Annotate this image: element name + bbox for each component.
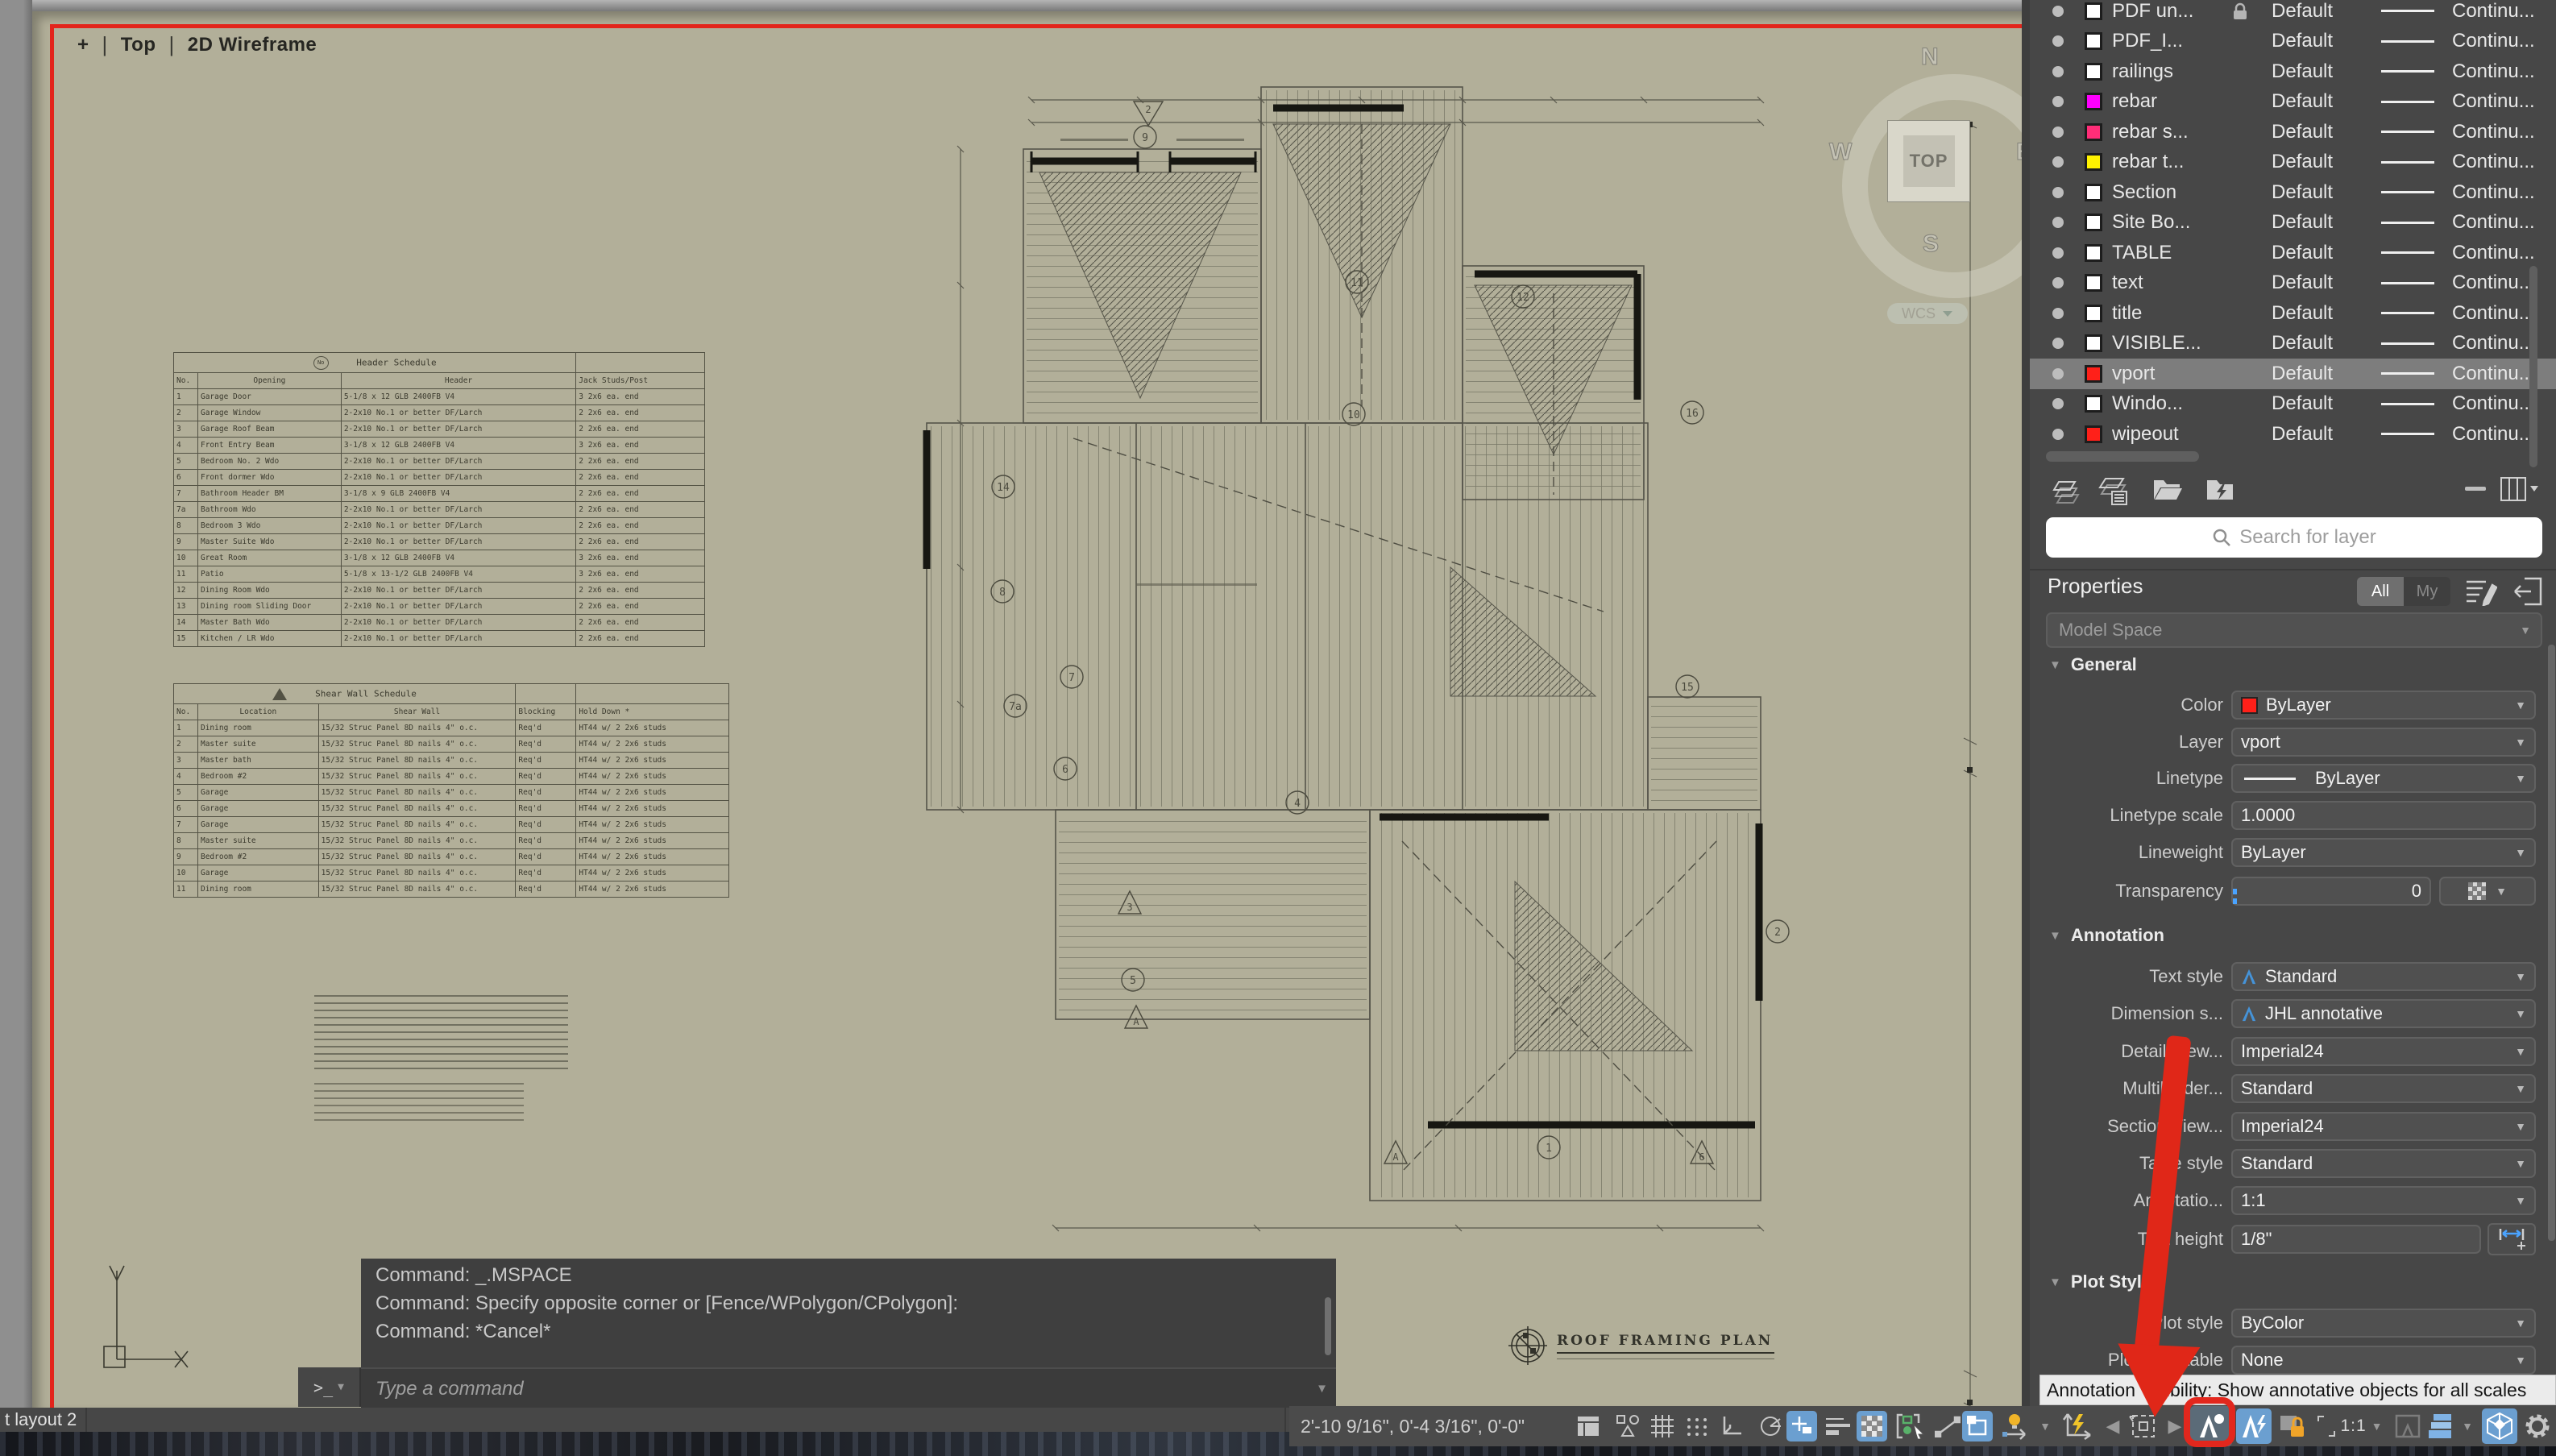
tooltip: Annotation Visibility: Show annotative o… [2039,1375,2556,1405]
right-panel: PDF un... Default Continu... PDF_I... De… [2022,0,2556,1456]
viewport-scale-control[interactable]: 1:1 ▼ [2314,1412,2387,1440]
layer-color-swatch[interactable] [2085,93,2102,110]
chevron-down-icon: ▼ [2515,1045,2526,1058]
layer-status-dot[interactable] [2052,187,2064,198]
table-row: 9Bedroom #215/32 Struc Panel 8D nails 4"… [174,849,729,865]
chevron-down-icon: ▼ [2515,1194,2526,1207]
multileader-dropdown[interactable]: Standard▼ [2231,1074,2536,1103]
chevron-down-icon: ▼ [2515,1120,2526,1133]
layer-status-dot[interactable] [2052,368,2064,380]
table-row: 1Dining room15/32 Struc Panel 8D nails 4… [174,720,729,736]
layer-line-sample [2381,70,2434,73]
properties-scrollbar[interactable] [2548,645,2555,1241]
linetype-label: Linetype [2030,764,2223,793]
chevron-down-icon[interactable]: ▼ [2037,1412,2053,1440]
collapse-triangle-icon: ▼ [2049,658,2061,672]
ucs-icon [85,1256,197,1385]
layer-name: wipeout [2112,423,2233,446]
wcs-menu[interactable]: WCS [1887,303,1968,324]
svg-text:1: 1 [1546,1143,1552,1155]
layer-status-dot[interactable] [2052,127,2064,138]
layer-name: VISIBLE... [2112,332,2233,355]
layer-color-swatch[interactable] [2085,32,2102,50]
layer-status-dot[interactable] [2052,6,2064,17]
command-input[interactable]: Type a command ▼ [361,1367,1336,1408]
layer-status-dot[interactable] [2052,338,2064,349]
osnap-marker-icon[interactable] [1786,1411,1817,1441]
layer-list-vscrollbar[interactable] [2529,266,2537,467]
annotation-highlight-circle [2184,1397,2235,1447]
layer-color-swatch[interactable] [2085,184,2102,201]
general-notes-text [314,1083,524,1125]
layer-linetype: Continu... [2452,242,2552,264]
layer-lineweight: Default [2272,0,2333,23]
toolbar-edge-strip [31,0,2030,11]
svg-text:A: A [1133,1016,1139,1027]
layer-name: rebar [2112,90,2233,113]
command-history-line: Command: _.MSPACE [361,1259,1336,1287]
divider [2030,569,2556,570]
viewcube[interactable]: N W E S TOP WCS [1810,35,2030,342]
collapse-triangle-icon: ▼ [2049,1276,2061,1289]
annotation-autoscale-icon[interactable] [2236,1408,2272,1444]
layer-lineweight: Default [2272,332,2333,355]
layer-color-swatch[interactable] [2085,365,2102,383]
chevron-down-icon [1942,310,1953,317]
transparency-slider[interactable]: 0 [2231,877,2431,906]
layer-color-swatch[interactable] [2085,334,2102,352]
panel-collapse-icon[interactable] [2513,577,2542,606]
layer-list-hscrollbar[interactable] [2046,451,2199,462]
layer-line-sample [2381,433,2434,435]
layer-row[interactable]: wipeout Default Continu... [2030,419,2556,450]
open-folder-icon[interactable] [2152,475,2183,503]
layer-color-swatch[interactable] [2085,63,2102,81]
layer-color-swatch[interactable] [2085,214,2102,231]
table-row: 10Garage15/32 Struc Panel 8D nails 4" o.… [174,865,729,881]
table-row: 8Master suite15/32 Struc Panel 8D nails … [174,833,729,849]
layer-row[interactable]: Section Default Continu... [2030,177,2556,208]
viewport-controls: + | Top | 2D Wireframe [77,32,317,57]
layer-color-swatch[interactable] [2085,305,2102,322]
table-style-label: Table style [2030,1149,2223,1178]
drawing-canvas[interactable]: + | Top | 2D Wireframe [32,11,2030,1408]
layer-status-dot[interactable] [2052,308,2064,319]
layer-color-swatch[interactable] [2085,425,2102,443]
chevron-down-icon: ▼ [2520,624,2531,637]
text-style-dropdown[interactable]: Standard▼ [2231,962,2536,991]
layer-row[interactable]: PDF un... Default Continu... [2030,0,2556,27]
properties-title: Properties [2048,574,2143,599]
svg-text:6: 6 [1062,764,1068,776]
table-row: 13Dining room Sliding Door2-2x10 No.1 or… [174,599,705,615]
layer-row[interactable]: PDF_I... Default Continu... [2030,27,2556,57]
table-row: 2Master suite15/32 Struc Panel 8D nails … [174,736,729,753]
chevron-down-icon: ▼ [2515,846,2526,859]
layer-line-sample [2381,282,2434,284]
layer-color-swatch[interactable] [2085,395,2102,413]
svg-text:5: 5 [1130,975,1136,987]
layer-status-dot[interactable] [2052,96,2064,107]
layer-linetype: Continu... [2452,30,2552,52]
layer-lineweight: Default [2272,121,2333,143]
table-row: 4Bedroom #215/32 Struc Panel 8D nails 4"… [174,769,729,785]
transparency-mode-button[interactable]: ▼ [2439,877,2536,906]
layer-name: railings [2112,60,2233,83]
table-row: 5Bedroom No. 2 Wdo2-2x10 No.1 or better … [174,454,705,470]
layer-status-dot[interactable] [2052,156,2064,168]
note-circle-symbol: No [313,356,329,370]
table-row: 3Master bath15/32 Struc Panel 8D nails 4… [174,753,729,769]
snap-dots-icon[interactable] [1683,1412,1712,1440]
dimension-style-label: Dimension s... [2030,999,2223,1028]
viewcube-west[interactable]: W [1829,139,1852,166]
svg-text:7a: 7a [1009,701,1022,713]
layer-line-sample [2381,10,2434,12]
layer-line-sample [2381,191,2434,193]
layer-lineweight: Default [2272,363,2333,385]
layer-line-sample [2381,161,2434,164]
layer-row[interactable]: Windo... Default Continu... [2030,389,2556,420]
layer-line-sample [2381,101,2434,103]
general-notes-text [314,995,568,1072]
edit-list-icon[interactable] [2465,577,2497,606]
layer-name: vport [2112,363,2233,385]
dimension-style-dropdown[interactable]: JHL annotative▼ [2231,999,2536,1028]
folder-bolt-icon[interactable] [2205,475,2236,503]
table-row: 9Master Suite Wdo2-2x10 No.1 or better D… [174,534,705,550]
command-line-window: Command: _.MSPACE Command: Specify oppos… [361,1259,1336,1407]
section-plot-style[interactable]: ▼Plot Style [2049,1271,2151,1292]
linetype-dropdown[interactable]: ByLayer▼ [2231,764,2536,793]
layer-color-swatch[interactable] [2085,153,2102,171]
annotation-monitor-icon[interactable] [1998,1412,2034,1440]
layer-linetype: Continu... [2452,0,2552,23]
isolate-objects-icon[interactable] [1894,1412,1927,1440]
polar-tracking-icon[interactable] [1756,1412,1785,1440]
section-view-dropdown[interactable]: Imperial24▼ [2231,1112,2536,1141]
next-icon[interactable]: ▶ [2167,1412,2183,1440]
table-row: 14Master Bath Wdo2-2x10 No.1 or better D… [174,615,705,631]
layer-line-sample [2381,312,2434,314]
filter-all-button[interactable]: All [2357,577,2404,606]
plan-title-block: ROOF FRAMING PLAN [1507,1325,1774,1367]
previous-icon[interactable]: ◀ [2105,1412,2121,1440]
layer-search-input[interactable]: Search for layer [2046,517,2542,558]
settings-gear-icon[interactable] [2522,1412,2553,1440]
table-row: 8Bedroom 3 Wdo2-2x10 No.1 or better DF/L… [174,518,705,534]
layer-toolbar [2030,472,2556,509]
transparency-label: Transparency [2030,877,2223,906]
properties-filter-toggle: All My [2357,577,2450,606]
layer-name: Windo... [2112,392,2233,415]
layer-lineweight: Default [2272,181,2333,204]
command-history: Command: _.MSPACE Command: Specify oppos… [361,1259,1336,1367]
layer-line-sample [2381,40,2434,43]
viewport-view-menu[interactable]: Top [121,34,156,56]
chevron-down-icon: ▼ [2515,772,2526,785]
lock-ui-icon[interactable] [2277,1412,2309,1440]
table-row: 3Garage Roof Beam2-2x10 No.1 or better D… [174,421,705,438]
chevron-down-icon[interactable]: ▼ [2460,1412,2475,1440]
layer-linetype: Continu... [2452,211,2552,234]
annotative-icon [2241,969,2257,985]
layer-lineweight: Default [2272,302,2333,325]
chevron-down-icon: ▼ [2515,1082,2526,1095]
filter-my-button[interactable]: My [2404,577,2450,606]
layer-row[interactable]: rebar Default Continu... [2030,87,2556,118]
table-row: 6Garage15/32 Struc Panel 8D nails 4" o.c… [174,801,729,817]
svg-text:2: 2 [1145,104,1151,115]
window-left-strip [0,0,32,1432]
layer-color-swatch[interactable] [2085,123,2102,141]
ortho-icon[interactable] [1717,1412,1746,1440]
svg-text:A: A [1392,1151,1399,1163]
table-row: 7Garage15/32 Struc Panel 8D nails 4" o.c… [174,817,729,833]
layer-name: TABLE [2112,242,2233,264]
layer-row[interactable]: railings Default Continu... [2030,56,2556,87]
layer-row[interactable]: rebar s... Default Continu... [2030,117,2556,147]
chevron-down-icon: ▼ [2496,885,2507,898]
text-height-pick-button[interactable] [2488,1223,2536,1255]
layer-lineweight: Default [2272,242,2333,264]
table-row: 11Dining room15/32 Struc Panel 8D nails … [174,881,729,898]
new-layer-icon[interactable] [2051,475,2081,504]
layer-lineweight: Default [2272,211,2333,234]
table-row: 2Garage Window2-2x10 No.1 or better DF/L… [174,405,705,421]
table-row: 12Dining Room Wdo2-2x10 No.1 or better D… [174,583,705,599]
north-symbol-icon [1507,1325,1549,1367]
app-window: + | Top | 2D Wireframe [0,0,2556,1456]
note-triangle-symbol [272,688,287,700]
separator: | [168,32,174,57]
chevron-down-icon: ▼ [2515,1354,2526,1367]
layer-row[interactable]: TABLE Default Continu... [2030,238,2556,268]
layer-lineweight: Default [2272,30,2333,52]
layer-row[interactable]: Site Bo... Default Continu... [2030,208,2556,239]
plot-style-label: Plot style [2030,1309,2223,1338]
layer-lineweight: Default [2272,392,2333,415]
chevron-down-icon: ▼ [2515,699,2526,711]
collapse-triangle-icon: ▼ [2049,929,2061,943]
layer-status-dot[interactable] [2052,217,2064,228]
layer-linetype: Continu... [2452,121,2552,143]
svg-text:9: 9 [1142,132,1148,144]
layer-row[interactable]: VISIBLE... Default Continu... [2030,329,2556,359]
viewport-visual-style-menu[interactable]: 2D Wireframe [188,34,317,56]
lock-icon[interactable] [2233,2,2247,20]
separator: | [102,32,108,57]
shear-wall-schedule-table: Shear Wall Schedule No. Location Shear W… [173,683,729,898]
columns-icon[interactable] [2500,475,2539,503]
chevron-down-icon: ▼ [2515,1317,2526,1329]
plot-style-table-label: Plot style table [2030,1346,2223,1375]
table-row: 7aBathroom Wdo2-2x10 No.1 or better DF/L… [174,502,705,518]
lineweight-label: Lineweight [2030,838,2223,867]
layer-dropdown[interactable]: vport▼ [2231,728,2536,757]
color-label: Color [2030,691,2223,720]
plot-style-table-dropdown[interactable]: None▼ [2231,1346,2536,1375]
layer-line-sample [2381,131,2434,133]
layer-label: Layer [2030,728,2223,757]
viewcube-north[interactable]: N [1921,44,1939,71]
svg-text:15: 15 [1681,682,1694,694]
object-snap-shapes-icon[interactable] [1613,1412,1642,1440]
space-selector[interactable]: Model Space ▼ [2046,612,2542,648]
layer-name: Site Bo... [2112,211,2233,234]
table-row: 6Front dormer Wdo2-2x10 No.1 or better D… [174,470,705,486]
layer-name: PDF_I... [2112,30,2233,52]
linetype-scale-input[interactable]: 1.0000 [2231,801,2536,830]
coordinates-readout: 2'-10 9/16", 0'-4 3/16", 0'-0" [1301,1416,1525,1437]
plan-title: ROOF FRAMING PLAN [1557,1333,1774,1354]
svg-text:8: 8 [999,587,1006,599]
svg-text:6: 6 [1699,1151,1704,1163]
transparency-icon[interactable] [1857,1411,1887,1441]
layer-color-swatch[interactable] [2085,274,2102,292]
chevron-down-icon: ▼ [2515,970,2526,983]
annotative-icon [2241,1006,2257,1022]
layer-lineweight: Default [2272,60,2333,83]
section-view-label: Section View... [2030,1112,2223,1141]
annotation-scale-label: Annotatio... [2030,1186,2223,1215]
table-row: 11Patio5-1/8 x 13-1/2 GLB 2400FB V43 2x6… [174,566,705,583]
selection-cycling-icon[interactable] [2127,1412,2160,1440]
layer-status-dot[interactable] [2052,66,2064,77]
layer-name: PDF un... [2112,0,2233,23]
section-general[interactable]: ▼General [2049,654,2137,675]
table-row: 4Front Entry Beam3-1/8 x 12 GLB 2400FB V… [174,438,705,454]
layer-color-swatch[interactable] [2085,2,2102,20]
chevron-down-icon: ▼ [2515,1157,2526,1170]
svg-text:4: 4 [1294,798,1301,810]
table-row: 15Kitchen / LR Wdo2-2x10 No.1 or better … [174,631,705,647]
layer-list: PDF un... Default Continu... PDF_I... De… [2030,0,2556,450]
viewport-plus-menu[interactable]: + [77,34,89,56]
text-height-label: Text height [2030,1225,2223,1254]
table-row: 10Great Room3-1/8 x 12 GLB 2400FB V43 2x… [174,550,705,566]
layer-row[interactable]: vport Default Continu... [2030,359,2556,389]
layer-row[interactable]: rebar t... Default Continu... [2030,147,2556,178]
chevron-down-icon: ▼ [2515,736,2526,749]
chevron-down-icon: ▼ [2371,1420,2384,1433]
layer-line-sample [2381,372,2434,375]
layer-line-sample [2381,251,2434,254]
remove-icon[interactable] [2465,487,2486,492]
command-placeholder: Type a command [361,1378,1316,1400]
line-sample [2244,778,2296,780]
separator [1284,1408,1286,1432]
viewcube-top-face[interactable]: TOP [1887,120,1970,202]
layer-name: rebar s... [2112,121,2233,143]
command-history-line: Command: *Cancel* [361,1315,1336,1343]
layer-lineweight: Default [2272,151,2333,173]
layer-color-swatch[interactable] [2085,244,2102,262]
layer-status-dot[interactable] [2052,35,2064,47]
color-swatch [2241,697,2258,714]
annotation-scale-dropdown[interactable]: 1:1▼ [2231,1186,2536,1215]
layer-name: Section [2112,181,2233,204]
command-scrollbar[interactable] [1325,1297,1331,1355]
svg-text:11: 11 [1351,277,1363,289]
svg-text:2: 2 [1774,927,1781,939]
layout-tab-bar: t layout 2 [0,1408,1289,1432]
dynamic-input-icon[interactable] [1932,1412,1963,1440]
ucs-dynamic-icon[interactable] [2060,1412,2094,1440]
viewport-tool-icon[interactable] [1962,1411,1993,1441]
layer-name: rebar t... [2112,151,2233,173]
layer-linetype: Continu... [2452,90,2552,113]
viewport-scale-value: 1:1 [2340,1417,2366,1436]
viewcube-south[interactable]: S [1923,230,1939,258]
lineweight-dropdown[interactable]: ByLayer▼ [2231,838,2536,867]
svg-text:12: 12 [1517,292,1529,304]
workspace-cube-icon[interactable] [2482,1408,2517,1444]
layer-row[interactable]: title Default Continu... [2030,298,2556,329]
table-header-row: No. Location Shear Wall Blocking Hold Do… [174,704,729,720]
viewport-faded-icon[interactable] [2392,1412,2424,1440]
layer-lineweight: Default [2272,272,2333,294]
layout-icon[interactable] [1574,1412,1603,1440]
layer-name: text [2112,272,2233,294]
layer-row[interactable]: text Default Continu... [2030,268,2556,299]
svg-text:7: 7 [1068,672,1075,684]
text-style-label: Text style [2030,962,2223,991]
layout-tab[interactable]: t layout 2 [0,1408,87,1432]
search-icon [2212,528,2231,547]
layer-status-dot[interactable] [2052,398,2064,409]
chevron-down-icon: ▼ [2515,1007,2526,1020]
table-style-dropdown[interactable]: Standard▼ [2231,1149,2536,1178]
layer-name: title [2112,302,2233,325]
table-row: 7Bathroom Header BM3-1/8 x 9 GLB 2400FB … [174,486,705,502]
linetype-scale-label: Linetype scale [2030,801,2223,830]
plot-style-dropdown[interactable]: ByColor▼ [2231,1309,2536,1338]
section-annotation[interactable]: ▼Annotation [2049,925,2164,946]
layer-line-sample [2381,222,2434,224]
multileader-label: Multileader... [2030,1074,2223,1103]
svg-text:14: 14 [997,482,1010,494]
layer-settings-icon[interactable] [2097,475,2130,506]
layer-status-dot[interactable] [2052,429,2064,440]
layer-lineweight: Default [2272,90,2333,113]
detail-view-dropdown[interactable]: Imperial24▼ [2231,1037,2536,1066]
command-prompt-button[interactable]: >_▼ [298,1367,361,1407]
table-header-row: No. Opening Header Jack Studs/Post [174,373,705,389]
sheet-set-icon[interactable] [2424,1412,2459,1440]
svg-text:3: 3 [1127,902,1132,913]
color-dropdown[interactable]: ByLayer▼ [2231,691,2536,720]
layer-linetype: Continu... [2452,60,2552,83]
table-row: 5Garage15/32 Struc Panel 8D nails 4" o.c… [174,785,729,801]
grid-icon[interactable] [1648,1412,1677,1440]
detail-view-label: Detail View... [2030,1037,2223,1066]
search-placeholder: Search for layer [2239,526,2376,549]
text-height-input[interactable]: 1/8" [2231,1225,2481,1254]
checkerboard-icon [2468,882,2486,900]
chevron-down-icon[interactable]: ▼ [1316,1382,1336,1396]
layer-lineweight: Default [2272,423,2333,446]
table-row: 1Garage Door5-1/8 x 12 GLB 2400FB V43 2x… [174,389,705,405]
lineweight-display-icon[interactable] [1823,1412,1853,1440]
layer-status-dot[interactable] [2052,277,2064,288]
svg-text:10: 10 [1347,409,1360,421]
svg-text:16: 16 [1686,408,1699,420]
layer-linetype: Continu... [2452,151,2552,173]
layer-status-dot[interactable] [2052,247,2064,259]
command-history-line: Command: Specify opposite corner or [Fen… [361,1287,1336,1315]
layer-line-sample [2381,403,2434,405]
